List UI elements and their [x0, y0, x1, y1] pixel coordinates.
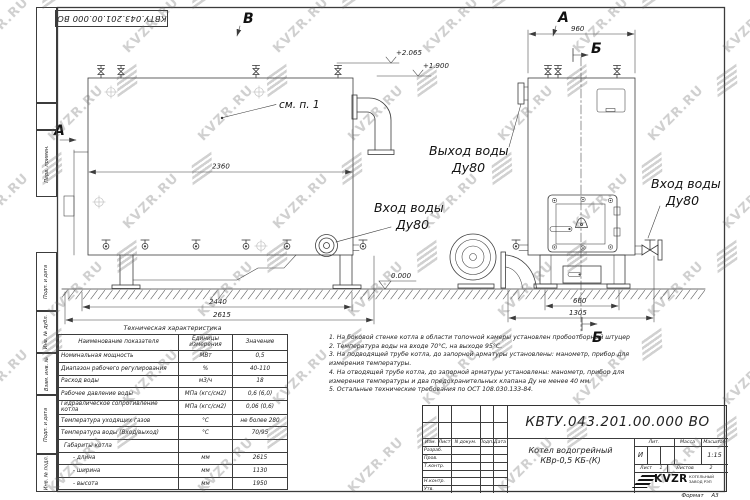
spec-header: Наименование показателя: [59, 334, 179, 350]
blower-fan: [450, 234, 537, 288]
margin-box-inv-podl: Инв. № подл.: [36, 454, 57, 492]
drain-valve-icon: [242, 240, 250, 249]
drawing-sheet: KVZR.RUKVZR.RUKVZR.RUKVZR.RUKVZR.RUKVZR.…: [0, 0, 750, 500]
format-value: А3: [711, 493, 718, 499]
valve-icon: [98, 66, 105, 79]
dim-1305: 1305: [569, 309, 587, 317]
drain-valve-icon: [192, 240, 200, 249]
spec-table-block: Техническая характеристика Наименование …: [58, 325, 287, 490]
col-ndoc: N докум.: [451, 438, 480, 446]
table-row: Рабочее давление водыМПа (кгс/см2)0,6 (6…: [59, 388, 288, 401]
lit-label: Лит.: [634, 438, 674, 446]
inlet-flange-circle: [316, 235, 338, 257]
sheets-value: 2: [701, 464, 721, 472]
level-top: +2.065: [396, 49, 422, 57]
lifting-marks: [93, 86, 268, 253]
outlet-leader: [509, 104, 521, 147]
col-data: Дата: [493, 438, 507, 446]
col-izm: Изм.: [423, 438, 438, 446]
top-document-number-text: КВТУ.043.201.00.000 ВО: [57, 14, 167, 24]
note-line: измерения температуры.: [329, 360, 729, 369]
spec-header: Единицы измерения: [179, 334, 233, 350]
table-row: Расход водым3/ч18: [59, 375, 288, 388]
company-line2: ЗАВОД РЭП: [689, 480, 714, 485]
valve-icon: [335, 66, 342, 79]
inlet-left-dn: Ду80: [395, 217, 429, 232]
outlet-flange: [518, 83, 528, 104]
product-name: Котел водогрейный КВр-0,5 КБ-(К): [507, 438, 634, 493]
format-label: Формат: [681, 493, 703, 499]
section-b-top-letter: Б: [591, 41, 602, 57]
level-mid: +1.900: [423, 62, 449, 70]
margin-label: Перв. примен.: [44, 145, 50, 183]
table-row: - длинамм2615: [59, 452, 288, 465]
outlet-elbow-pipe: [352, 95, 394, 155]
mass-label: Масса: [674, 438, 701, 446]
product-name-line2: КВр-0,5 КБ-(К): [507, 456, 634, 466]
table-row: - ширинамм1130: [59, 465, 288, 478]
valve-icon: [614, 66, 621, 79]
drain-valve-icon: [141, 240, 149, 249]
row-prov: Пров.: [424, 454, 451, 462]
margin-box-podp-data-2: Подп. и дата: [36, 395, 57, 454]
dim-660: 660: [573, 297, 587, 305]
table-row: - высотамм1950: [59, 477, 288, 490]
side-gauge-detail: [64, 150, 88, 255]
inlet-valve: [635, 240, 662, 260]
table-row: Габариты котла: [59, 440, 288, 453]
margin-label: Подп. и дата: [44, 264, 50, 298]
spec-table-title: Техническая характеристика: [58, 325, 287, 332]
inlet-left-label: Вход воды: [374, 200, 444, 215]
inlet-right-dn: Ду80: [665, 193, 699, 208]
note-line: 4. На отводящей трубе котла, до запорной…: [329, 369, 729, 378]
see-note-text: см. п. 1: [279, 99, 320, 111]
format-note: Формат А3: [660, 493, 740, 499]
inlet-right-leader: [648, 206, 660, 238]
spec-header: Значение: [233, 334, 288, 350]
row-utv: Утв.: [424, 485, 451, 493]
row-razrab: Разраб.: [424, 446, 451, 454]
margin-label: Взам. инв. №: [44, 357, 50, 391]
dim-2440: 2440: [209, 298, 227, 306]
drain-valve-icon: [283, 240, 291, 249]
level-zero: 0.000: [391, 272, 412, 280]
dim-2615: 2615: [213, 311, 231, 319]
margin-box-empty-2: [36, 103, 57, 130]
table-row: Гидравлическое сопротивление котлаМПа (к…: [59, 400, 288, 414]
company-name: КОТЕЛЬНЫЙ ЗАВОД РЭП: [689, 475, 714, 485]
view-b-letter: В: [243, 11, 254, 27]
margin-box-vzam-inv: Взам. инв. №: [36, 353, 57, 395]
side-support-frame: [112, 255, 361, 289]
valve-icon: [555, 66, 562, 79]
note-line: измерения температуры и два предохраните…: [329, 378, 729, 387]
ash-door: [563, 266, 601, 283]
boiler-side-view: [64, 66, 394, 289]
note-line: 1. На боковой стенке котла в области топ…: [329, 334, 729, 343]
sheet-label: Лист: [636, 464, 656, 472]
margin-box-empty-1: [36, 7, 57, 103]
lit-value: И: [634, 446, 647, 464]
outlet-label: Выход воды: [429, 143, 509, 158]
inspection-panel: [597, 89, 625, 112]
technical-notes: 1. На боковой стенке котла в области топ…: [329, 334, 729, 395]
view-a-right-letter: А: [557, 10, 569, 26]
drain-valve-icon: [102, 240, 110, 249]
col-podp: Подп.: [480, 438, 493, 446]
scale-value: 1:15: [701, 446, 728, 464]
note-line: 3. На подводящей трубе котла, до запорно…: [329, 351, 729, 360]
inlet-right-label: Вход воды: [651, 176, 721, 191]
margin-box-perv-primen: Перв. примен.: [36, 130, 57, 197]
margin-label: Инв. № дубл.: [44, 315, 50, 349]
margin-label: Подп. и дата: [44, 407, 50, 441]
spec-table: Наименование показателя Единицы измерени…: [58, 334, 288, 491]
front-left-valve-icon: [512, 240, 520, 249]
dim-2360: 2360: [212, 163, 230, 171]
table-row: Диапазон рабочего регулирования%40-110: [59, 363, 288, 376]
valve-icon: [545, 66, 552, 79]
table-row: Температура воды (Вход/выход)°С70/95: [59, 427, 288, 440]
valve-icon: [118, 66, 125, 79]
valve-icon: [253, 66, 260, 79]
table-row: Температура уходящих газов°Сне более 280: [59, 414, 288, 427]
margin-box-podp-data-1: Подп. и дата: [36, 252, 57, 311]
dim-960: 960: [571, 25, 585, 33]
margin-box-inv-dubl: Инв. № дубл.: [36, 311, 57, 353]
row-nkontr: Н.контр.: [424, 477, 451, 485]
top-document-number: КВТУ.043.201.00.000 ВО: [55, 10, 168, 27]
furnace-door: [548, 195, 620, 252]
front-left-valve-stub: [519, 245, 528, 251]
scale-label: Масштаб: [701, 438, 728, 446]
table-row: Номинальная мощностьМВт0,5: [59, 350, 288, 363]
product-name-line1: Котел водогрейный: [507, 446, 634, 456]
title-doc-number: КВТУ.043.201.00.000 ВО: [507, 406, 728, 438]
level-marks: [337, 57, 431, 289]
sheet-value: 1: [656, 464, 666, 472]
see-note-callout: [221, 105, 276, 120]
margin-label: Инв. № подл.: [44, 456, 50, 491]
ground: [62, 289, 705, 299]
note-line: 5. Остальные технические требования по О…: [329, 386, 729, 395]
stub-valve-icon: [359, 240, 367, 249]
side-stub-valve: [353, 245, 359, 251]
outlet-dn: Ду80: [451, 160, 485, 175]
col-list: Лист: [438, 438, 451, 446]
title-block: КВТУ.043.201.00.000 ВО Изм. Лист N докум…: [422, 405, 727, 492]
kvzr-logo-text: KVZR: [654, 473, 688, 485]
sheets-label: Листов: [671, 464, 699, 472]
row-tkontr: Т.контр.: [424, 462, 451, 470]
